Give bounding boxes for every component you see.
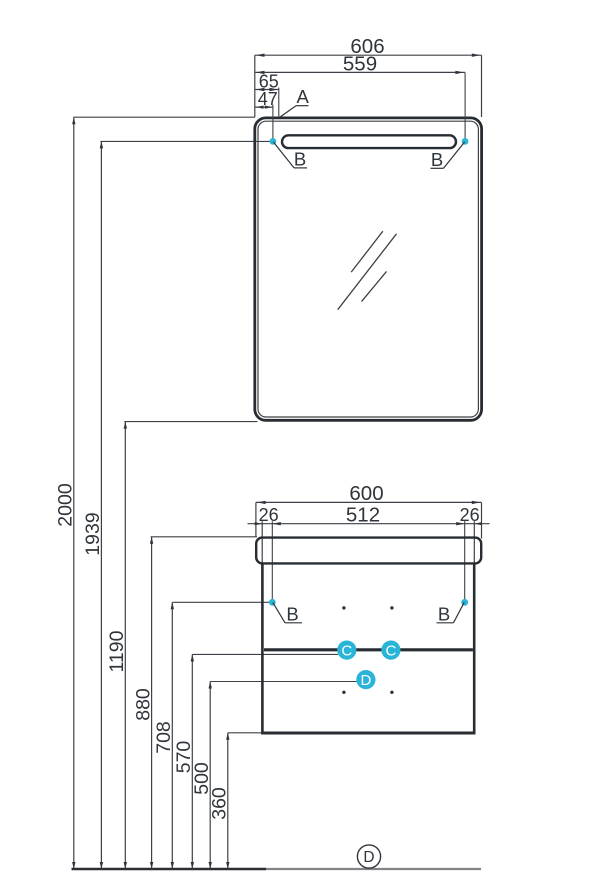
svg-text:B: B bbox=[431, 149, 443, 170]
svg-text:A: A bbox=[297, 86, 310, 107]
svg-text:D: D bbox=[360, 672, 371, 689]
svg-text:512: 512 bbox=[346, 503, 380, 526]
svg-text:708: 708 bbox=[153, 721, 175, 754]
svg-text:B: B bbox=[294, 148, 306, 169]
svg-text:1190: 1190 bbox=[106, 630, 128, 672]
svg-text:26: 26 bbox=[460, 505, 480, 525]
svg-text:B: B bbox=[286, 603, 298, 624]
svg-text:360: 360 bbox=[209, 787, 231, 820]
svg-text:D: D bbox=[363, 849, 374, 866]
svg-text:47: 47 bbox=[258, 89, 278, 109]
svg-text:C: C bbox=[341, 642, 352, 659]
svg-text:559: 559 bbox=[343, 52, 377, 75]
svg-text:B: B bbox=[438, 603, 450, 624]
svg-text:600: 600 bbox=[349, 482, 383, 505]
svg-text:880: 880 bbox=[132, 688, 154, 721]
svg-text:2000: 2000 bbox=[55, 483, 77, 527]
svg-text:1939: 1939 bbox=[82, 512, 104, 555]
svg-text:26: 26 bbox=[259, 505, 279, 525]
svg-text:C: C bbox=[385, 642, 396, 659]
